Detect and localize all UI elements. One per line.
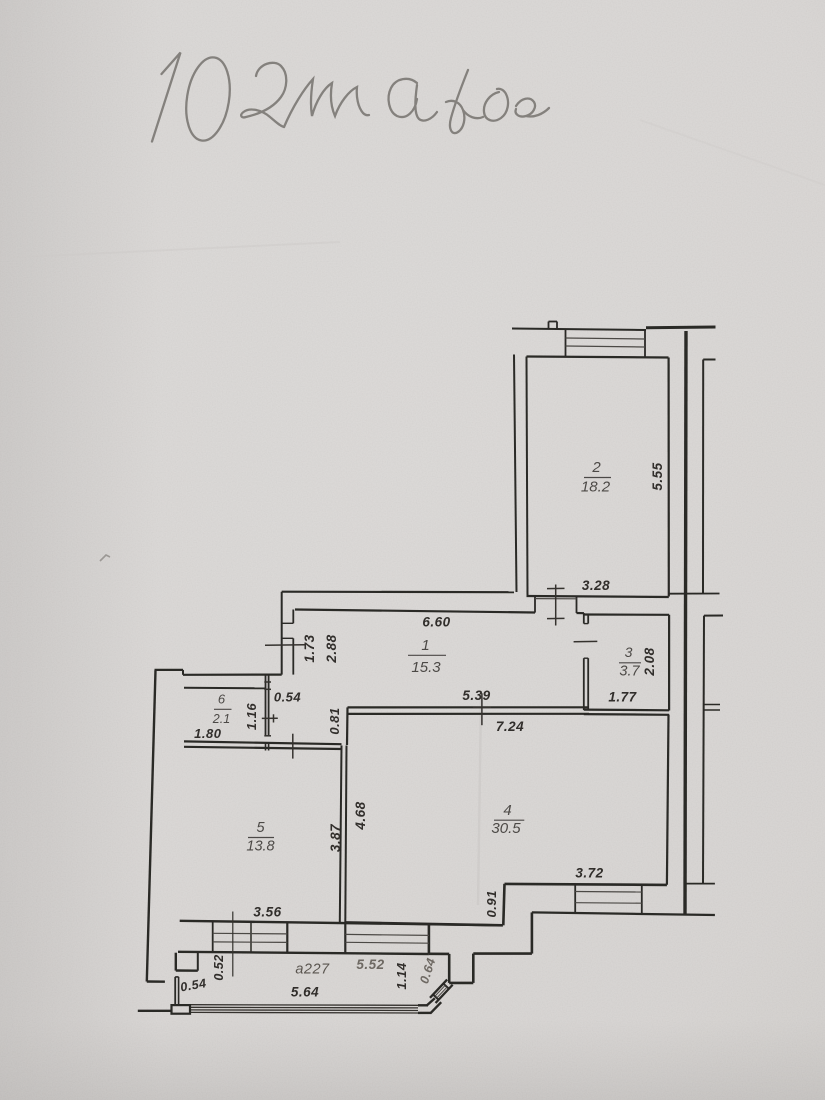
svg-text:6.60: 6.60 xyxy=(422,615,450,630)
svg-text:0.52: 0.52 xyxy=(212,954,226,980)
svg-text:3.87: 3.87 xyxy=(328,823,343,852)
svg-text:3.28: 3.28 xyxy=(582,578,610,593)
svg-text:3.72: 3.72 xyxy=(575,865,603,880)
svg-text:3.56: 3.56 xyxy=(253,905,281,920)
svg-text:30.5: 30.5 xyxy=(491,820,521,837)
svg-text:18.2: 18.2 xyxy=(581,478,611,495)
svg-text:2: 2 xyxy=(591,459,601,476)
svg-text:3.7: 3.7 xyxy=(619,663,640,679)
svg-text:0.81: 0.81 xyxy=(327,707,342,734)
svg-text:13.8: 13.8 xyxy=(246,838,274,854)
svg-text:5: 5 xyxy=(256,820,265,836)
svg-text:15.3: 15.3 xyxy=(411,659,441,676)
svg-text:2.88: 2.88 xyxy=(324,634,339,663)
svg-text:0.91: 0.91 xyxy=(484,890,499,917)
svg-text:7.24: 7.24 xyxy=(496,719,524,734)
svg-text:2.08: 2.08 xyxy=(642,647,657,676)
svg-text:5.55: 5.55 xyxy=(650,462,665,490)
svg-text:1.77: 1.77 xyxy=(608,690,637,705)
svg-text:1.80: 1.80 xyxy=(194,726,222,741)
svg-text:6: 6 xyxy=(218,691,226,706)
svg-text:5.64: 5.64 xyxy=(291,985,319,1000)
svg-text:4: 4 xyxy=(503,802,511,819)
svg-text:5.52: 5.52 xyxy=(356,957,384,972)
svg-text:3: 3 xyxy=(625,644,633,660)
svg-text:1.73: 1.73 xyxy=(302,634,317,662)
svg-text:a227: a227 xyxy=(295,961,330,977)
svg-text:1.14: 1.14 xyxy=(394,962,409,990)
svg-text:4.68: 4.68 xyxy=(353,801,368,830)
svg-text:2.1: 2.1 xyxy=(212,712,230,726)
svg-text:0.54: 0.54 xyxy=(274,690,302,705)
svg-text:1: 1 xyxy=(421,637,429,654)
svg-text:5.39: 5.39 xyxy=(462,688,490,703)
svg-text:1.16: 1.16 xyxy=(244,703,259,731)
